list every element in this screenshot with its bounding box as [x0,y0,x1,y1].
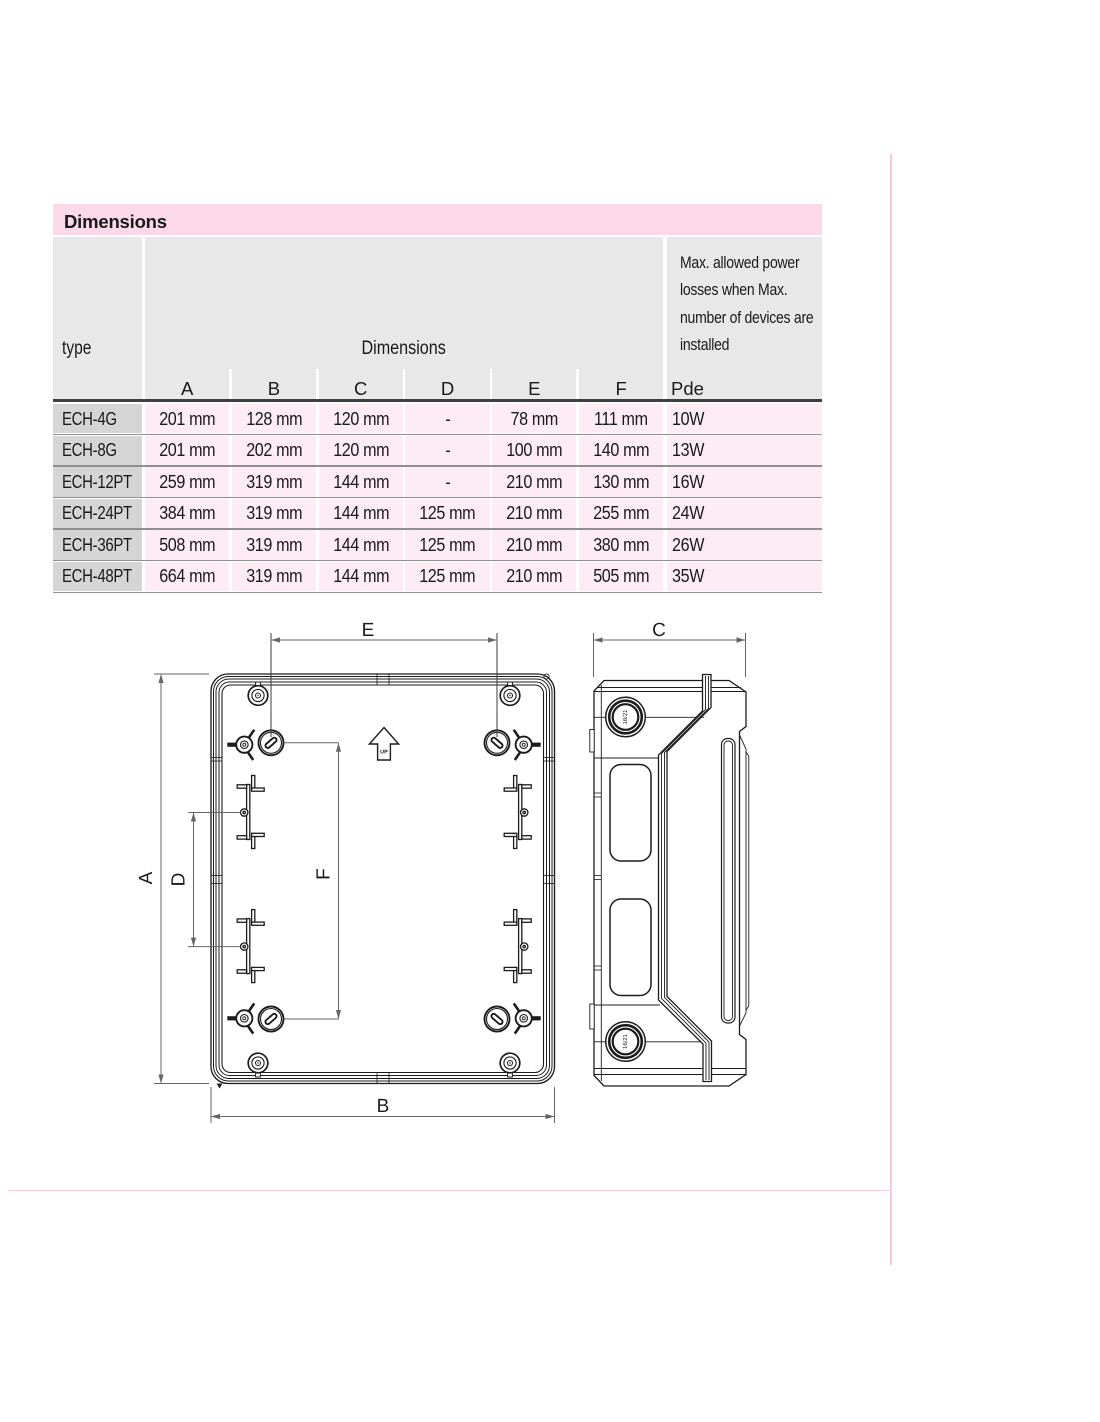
svg-text:A: A [136,871,157,884]
svg-text:UP: UP [380,750,388,756]
svg-text:E: E [362,620,375,641]
svg-text:B: B [377,1096,390,1117]
svg-text:D: D [169,873,190,887]
svg-text:16/21: 16/21 [622,1033,629,1049]
svg-text:16/21: 16/21 [622,709,629,725]
svg-text:C: C [652,620,666,641]
svg-text:F: F [314,868,335,880]
